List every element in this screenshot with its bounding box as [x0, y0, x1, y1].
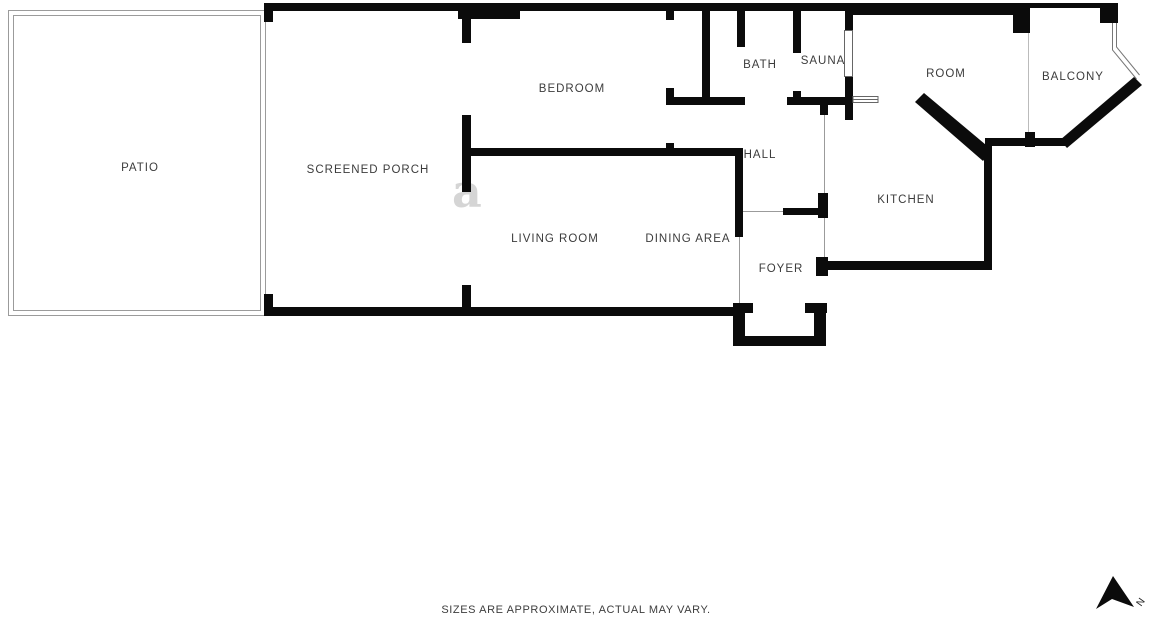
wall-sauna-right-b	[845, 77, 853, 120]
room-label-sauna: SAUNA	[801, 55, 846, 67]
balcony-railing-inner	[1117, 23, 1140, 75]
wall-foyer-top-right-stub	[805, 303, 827, 313]
room-label-living-room: LIVING ROOM	[511, 233, 599, 245]
wall-balcony-divider-stub	[1025, 132, 1035, 147]
room-label-balcony: BALCONY	[1042, 71, 1104, 83]
north-arrow-icon	[1096, 576, 1134, 609]
room-label-bath: BATH	[743, 59, 777, 71]
wall-kitchen-right	[984, 146, 992, 270]
room-label-bedroom: BEDROOM	[539, 83, 605, 95]
wall-porch-right-a	[462, 8, 471, 43]
room-label-foyer: FOYER	[759, 263, 804, 275]
wall-hall-left	[735, 148, 743, 237]
wall-foyer-top-left-stub	[733, 303, 753, 313]
wall-bedroom-right-a	[666, 5, 674, 20]
wall-hall-right-mid-stub	[818, 193, 828, 218]
wall-living-top	[466, 148, 743, 156]
wall-top-balcony	[1030, 3, 1100, 8]
wall-hall-top-left	[666, 97, 745, 105]
room-label-kitchen: KITCHEN	[877, 194, 934, 206]
wall-top-main	[264, 3, 850, 11]
wall-bottom-main	[264, 307, 743, 316]
wall-hall-top-right	[787, 97, 852, 105]
wall-hall-right-top-stub	[820, 97, 828, 115]
wall-balcony-diagonal	[1060, 77, 1142, 148]
sauna-door-symbol	[845, 31, 853, 77]
wall-kitchen-bottom	[816, 261, 992, 270]
wall-corner-block-ne	[1100, 3, 1118, 23]
wall-kitchen-diagonal	[915, 93, 992, 161]
wall-sauna-right-a	[845, 9, 853, 30]
wall-bath-left	[702, 8, 710, 105]
room-label-patio: PATIO	[121, 162, 159, 174]
room-label-dining-area: DINING AREA	[645, 233, 730, 245]
wall-porch-right-c	[462, 285, 471, 311]
compass: N	[1096, 576, 1148, 609]
wall-porch-left-top-stub	[264, 4, 273, 22]
wall-top-room	[850, 3, 1030, 15]
wall-bath-stub	[737, 8, 745, 47]
wall-chimney-block	[1013, 3, 1030, 33]
compass-north-label: N	[1135, 596, 1148, 608]
room-label-hall: HALL	[744, 149, 777, 161]
room-label-room: ROOM	[926, 68, 966, 80]
room-label-screened-porch: SCREENED PORCH	[307, 164, 430, 176]
wall-foyer-entry-bottom	[733, 336, 826, 346]
disclaimer-text: SIZES ARE APPROXIMATE, ACTUAL MAY VARY.	[441, 604, 710, 616]
wall-bath-sauna-a	[793, 8, 801, 53]
